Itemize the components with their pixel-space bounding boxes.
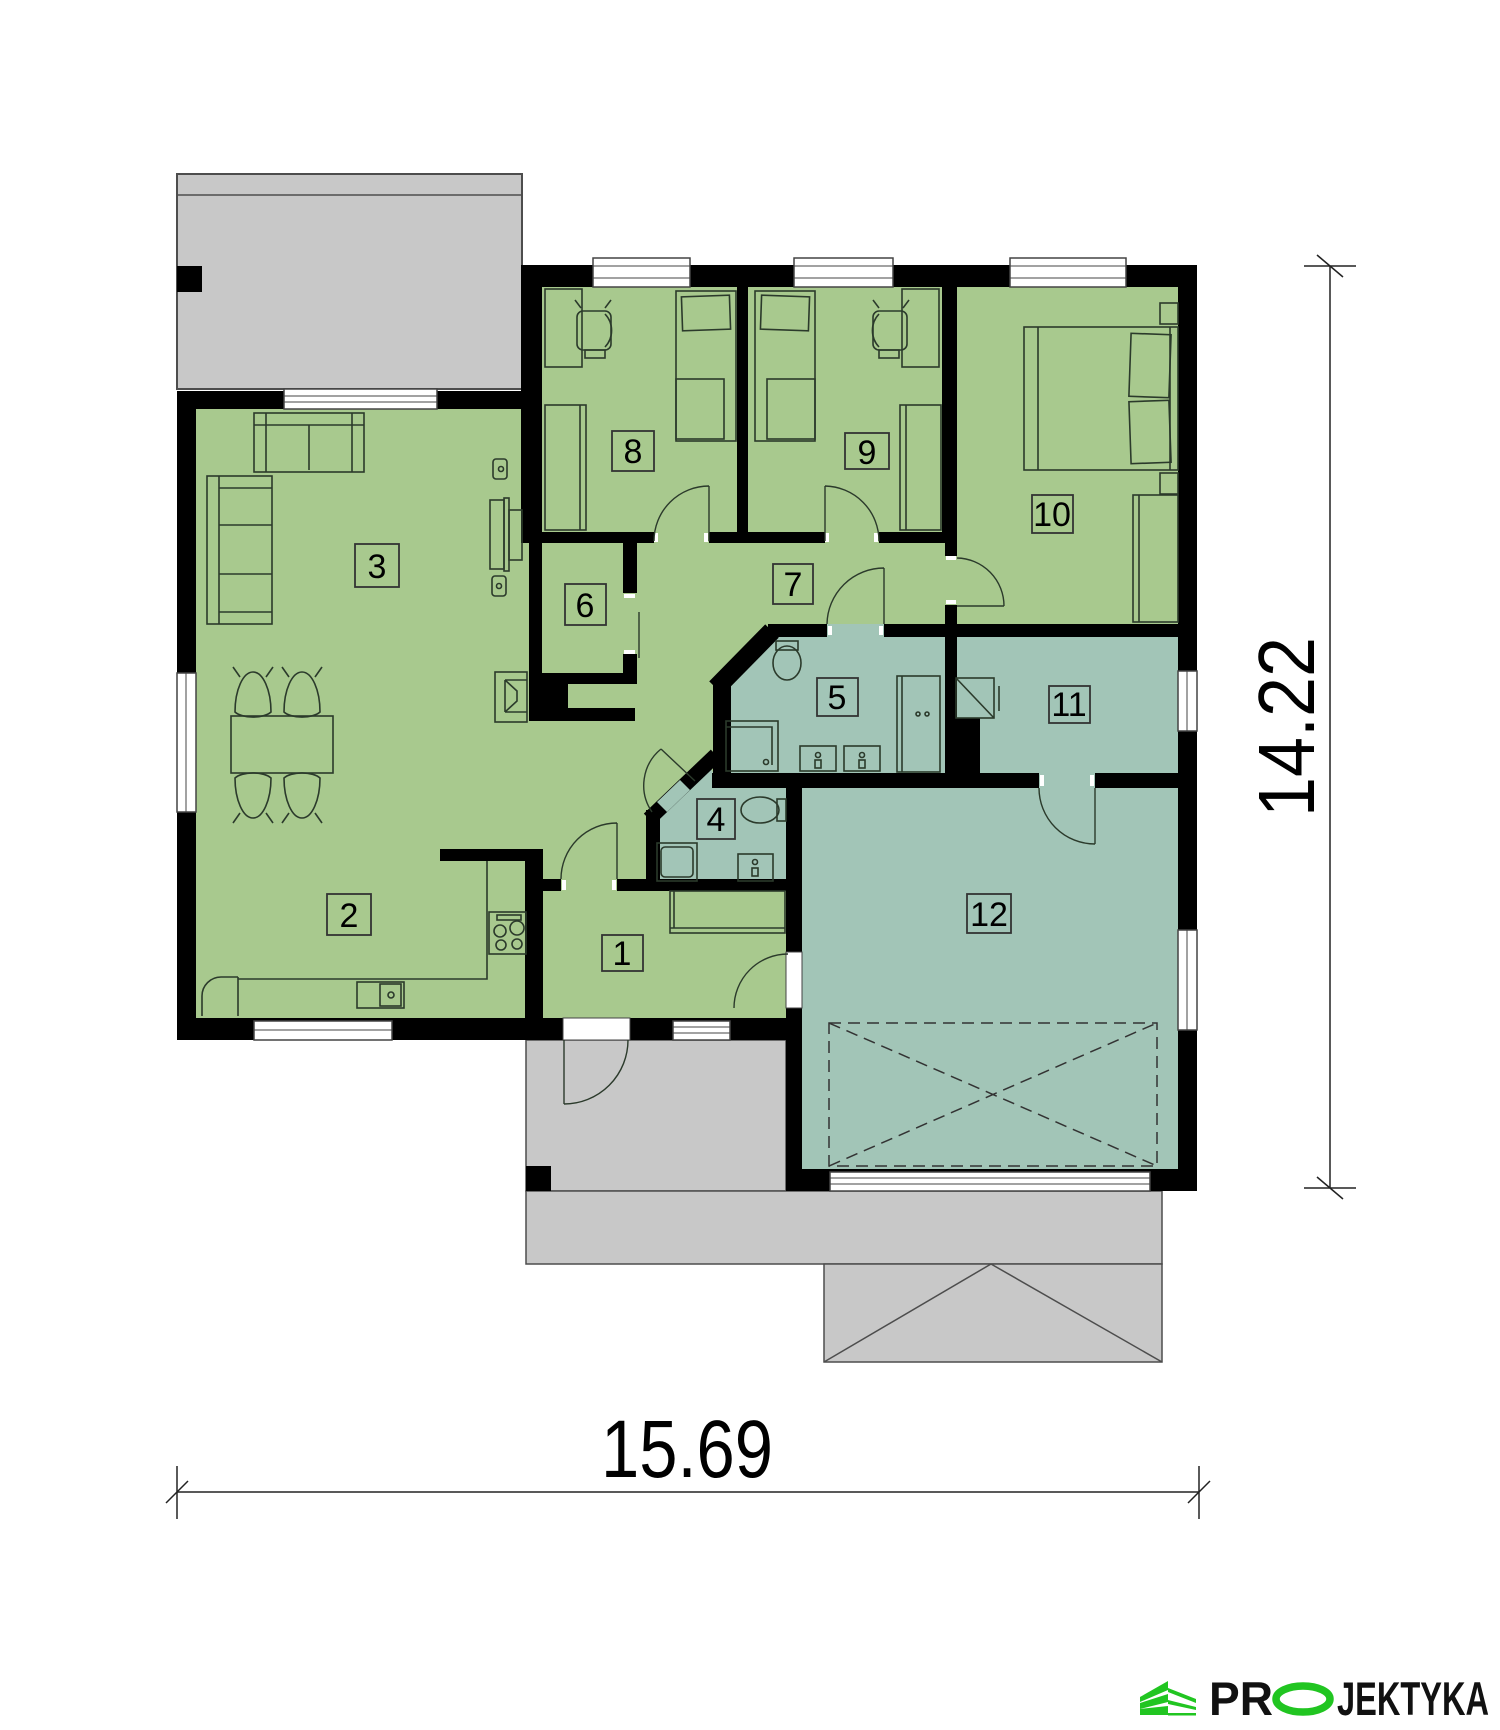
svg-text:11: 11 [1051, 686, 1086, 724]
svg-text:7: 7 [784, 566, 803, 604]
svg-text:8: 8 [624, 433, 643, 471]
svg-text:1: 1 [613, 935, 632, 973]
svg-text:15.69: 15.69 [601, 1404, 773, 1495]
svg-text:6: 6 [576, 587, 595, 625]
svg-text:2: 2 [340, 897, 359, 935]
svg-text:3: 3 [368, 548, 387, 586]
svg-text:12: 12 [970, 896, 1008, 934]
svg-text:4: 4 [707, 801, 726, 839]
svg-text:JEKTYKA: JEKTYKA [1337, 1672, 1489, 1725]
svg-text:14.22: 14.22 [1242, 637, 1331, 817]
svg-text:10: 10 [1033, 496, 1071, 534]
svg-text:5: 5 [828, 679, 847, 717]
svg-text:9: 9 [858, 434, 877, 472]
svg-text:PR: PR [1209, 1672, 1273, 1725]
